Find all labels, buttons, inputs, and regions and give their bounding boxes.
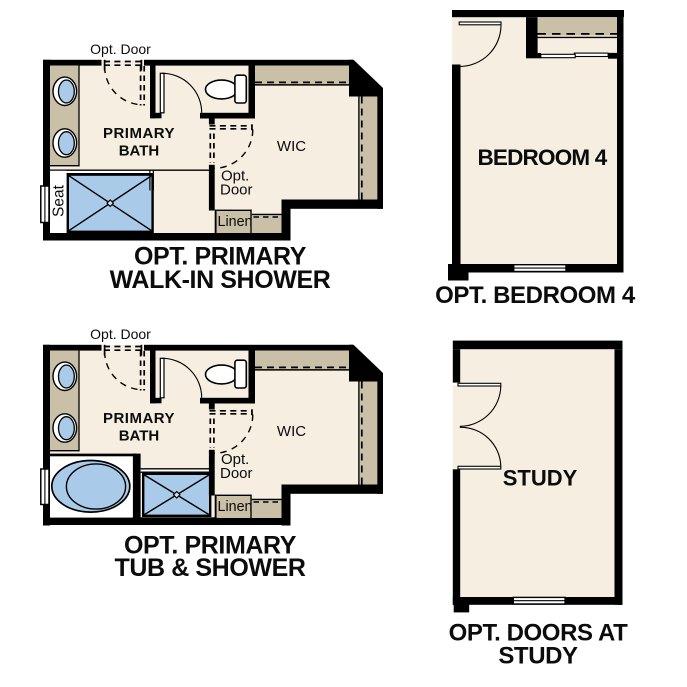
svg-text:WIC: WIC: [277, 138, 306, 155]
svg-text:Linen: Linen: [218, 214, 253, 230]
svg-text:BATH: BATH: [119, 143, 160, 160]
svg-text:Opt. Door: Opt. Door: [90, 41, 151, 57]
svg-text:STUDY: STUDY: [503, 466, 578, 491]
svg-text:BEDROOM 4: BEDROOM 4: [477, 145, 607, 170]
svg-text:OPT. BEDROOM 4: OPT. BEDROOM 4: [435, 282, 636, 309]
svg-text:Linen: Linen: [218, 499, 253, 515]
svg-text:Opt. Door: Opt. Door: [90, 326, 151, 342]
svg-text:Door: Door: [220, 465, 253, 482]
svg-text:WIC: WIC: [277, 423, 306, 440]
svg-text:TUB & SHOWER: TUB & SHOWER: [114, 554, 305, 582]
svg-text:STUDY: STUDY: [498, 643, 578, 670]
svg-text:Door: Door: [220, 182, 253, 199]
svg-text:PRIMARY: PRIMARY: [103, 410, 175, 427]
svg-text:BATH: BATH: [119, 428, 160, 445]
svg-text:WALK-IN SHOWER: WALK-IN SHOWER: [110, 266, 331, 294]
svg-text:PRIMARY: PRIMARY: [103, 125, 175, 142]
svg-text:Seat: Seat: [51, 184, 68, 217]
